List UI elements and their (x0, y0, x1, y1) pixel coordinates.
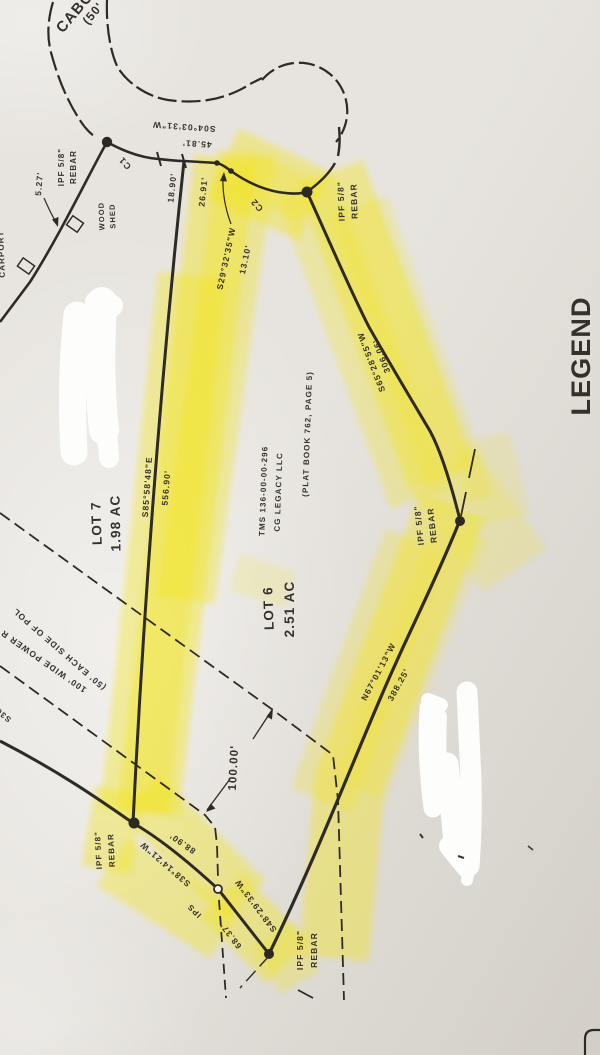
svg-text:2.51 AC: 2.51 AC (282, 581, 297, 638)
svg-text:LEGEND: LEGEND (566, 296, 596, 415)
svg-text:IPF 5/8": IPF 5/8" (335, 181, 346, 222)
svg-text:REBAR: REBAR (309, 932, 319, 968)
svg-text:1.98 AC: 1.98 AC (108, 495, 124, 552)
svg-text:LOT 7: LOT 7 (88, 501, 105, 545)
svg-text:SHED: SHED (108, 203, 118, 229)
svg-text:IPF 5/8": IPF 5/8" (295, 930, 305, 970)
svg-text:REBAR: REBAR (69, 150, 78, 184)
svg-text:LOT 6: LOT 6 (260, 586, 277, 630)
svg-text:IPF 5/8": IPF 5/8" (57, 148, 66, 186)
svg-text:100.00': 100.00' (227, 745, 241, 791)
svg-text:45.81': 45.81' (182, 138, 213, 150)
svg-text:WOOD: WOOD (97, 202, 107, 231)
svg-text:REBAR: REBAR (106, 833, 117, 867)
svg-text:REBAR: REBAR (348, 183, 359, 219)
svg-text:5.27': 5.27' (33, 171, 45, 196)
